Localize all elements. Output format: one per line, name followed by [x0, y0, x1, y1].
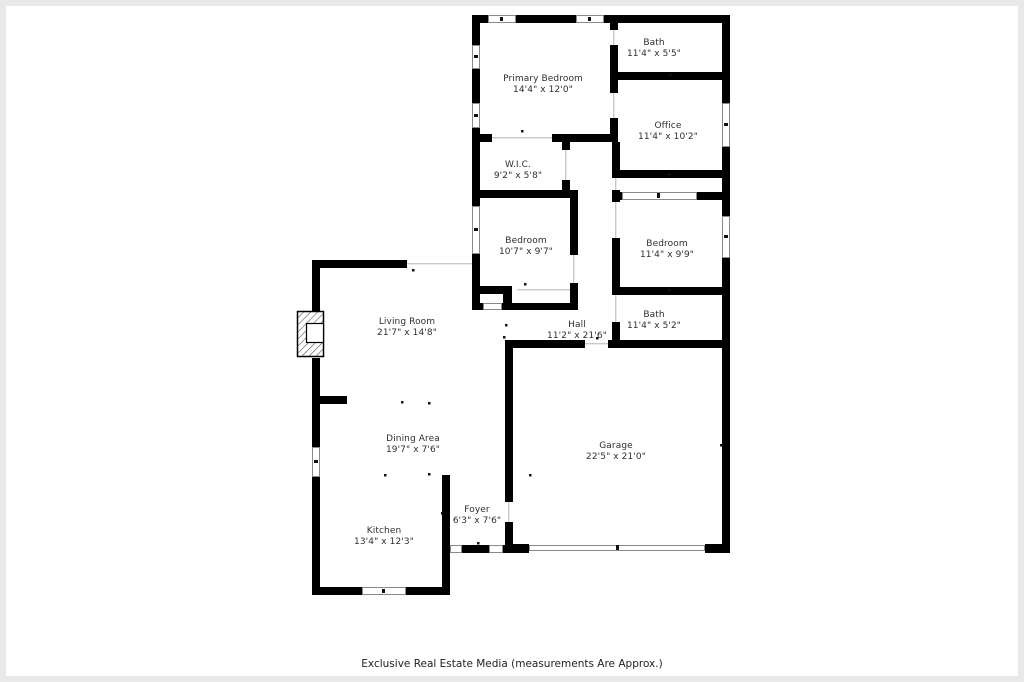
fireplace: [298, 312, 324, 357]
room-label-bath-top: Bath 11'4" x 5'5": [627, 38, 681, 60]
room-name: Living Room: [377, 317, 437, 328]
room-label-garage: Garage 22'5" x 21'0": [586, 441, 646, 463]
room-dims: 11'2" x 21'6": [547, 331, 607, 342]
room-name: Bath: [627, 310, 681, 321]
room-name: Hall: [547, 320, 607, 331]
room-label-primary-bedroom: Primary Bedroom 14'4" x 12'0": [503, 74, 583, 96]
walls: [312, 15, 730, 595]
room-label-hall: Hall 11'2" x 21'6": [547, 320, 607, 342]
room-dims: 21'7" x 14'8": [377, 328, 437, 339]
room-dims: 19'7" x 7'6": [386, 445, 440, 456]
room-name: Garage: [586, 441, 646, 452]
room-dims: 14'4" x 12'0": [503, 85, 583, 96]
room-label-living-room: Living Room 21'7" x 14'8": [377, 317, 437, 339]
floorplan-drawing: [6, 6, 1018, 676]
room-dims: 10'7" x 9'7": [499, 247, 553, 258]
room-name: Bedroom: [640, 239, 694, 250]
credit-line: Exclusive Real Estate Media (measurement…: [361, 658, 662, 670]
room-name: Primary Bedroom: [503, 74, 583, 85]
room-label-bedroom-right: Bedroom 11'4" x 9'9": [640, 239, 694, 261]
room-label-kitchen: Kitchen 13'4" x 12'3": [354, 526, 414, 548]
room-dims: 11'4" x 9'9": [640, 250, 694, 261]
room-name: W.I.C.: [494, 160, 542, 171]
room-label-bedroom-left: Bedroom 10'7" x 9'7": [499, 236, 553, 258]
room-label-bath-bottom: Bath 11'4" x 5'2": [627, 310, 681, 332]
room-label-office: Office 11'4" x 10'2": [638, 121, 698, 143]
room-name: Bath: [627, 38, 681, 49]
room-label-foyer: Foyer 6'3" x 7'6": [453, 505, 501, 527]
room-dims: 11'4" x 5'5": [627, 49, 681, 60]
room-name: Bedroom: [499, 236, 553, 247]
floor-plan: Primary Bedroom 14'4" x 12'0" Bath 11'4"…: [0, 0, 1024, 682]
room-dims: 11'4" x 10'2": [638, 132, 698, 143]
room-dims: 22'5" x 21'0": [586, 452, 646, 463]
room-label-wic: W.I.C. 9'2" x 5'8": [494, 160, 542, 182]
room-dims: 9'2" x 5'8": [494, 171, 542, 182]
room-dims: 13'4" x 12'3": [354, 537, 414, 548]
room-name: Office: [638, 121, 698, 132]
room-dims: 11'4" x 5'2": [627, 321, 681, 332]
room-dims: 6'3" x 7'6": [453, 516, 501, 527]
room-label-dining-area: Dining Area 19'7" x 7'6": [386, 434, 440, 456]
room-name: Dining Area: [386, 434, 440, 445]
room-name: Foyer: [453, 505, 501, 516]
room-name: Kitchen: [354, 526, 414, 537]
